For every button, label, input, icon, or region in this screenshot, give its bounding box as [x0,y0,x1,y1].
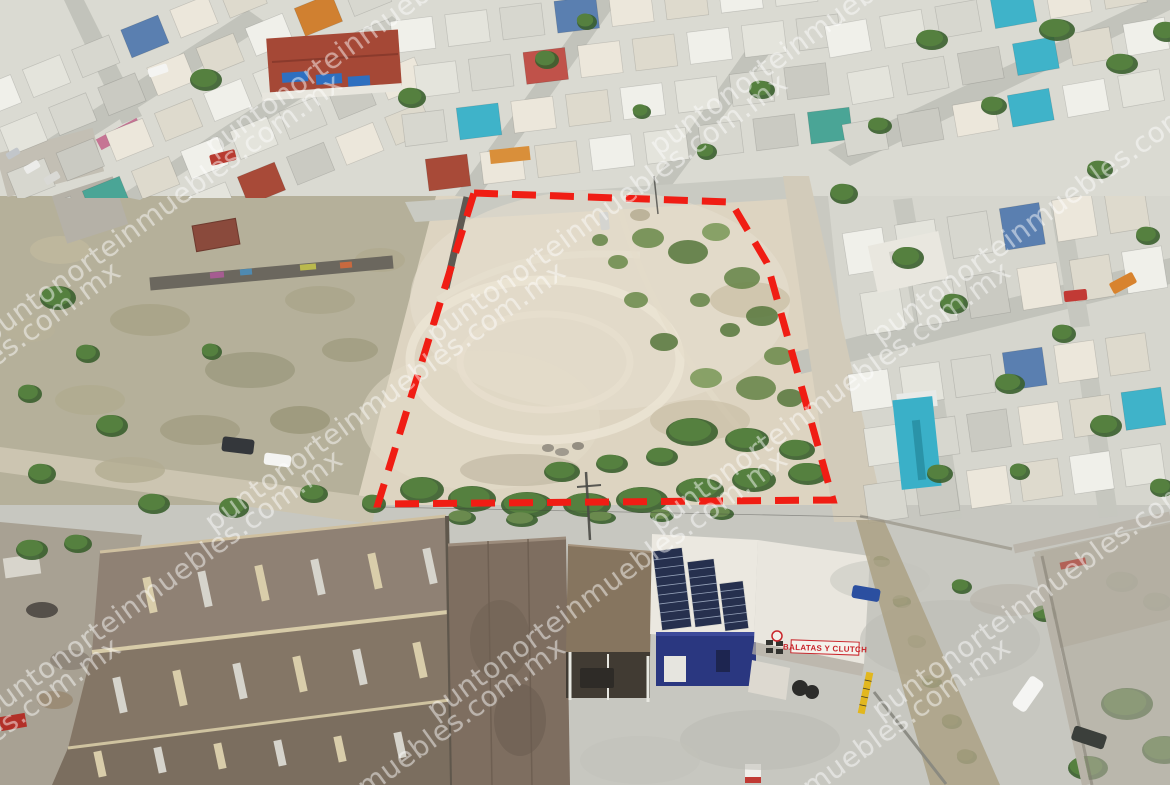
sign-logo-icon [772,631,782,641]
warehouse-roofs [52,516,452,785]
aerial-photo-stage: BALATAS Y CLUTCH puntonorteinmuebles.com… [0,0,1170,785]
aerial-photograph: BALATAS Y CLUTCH [0,0,1170,785]
